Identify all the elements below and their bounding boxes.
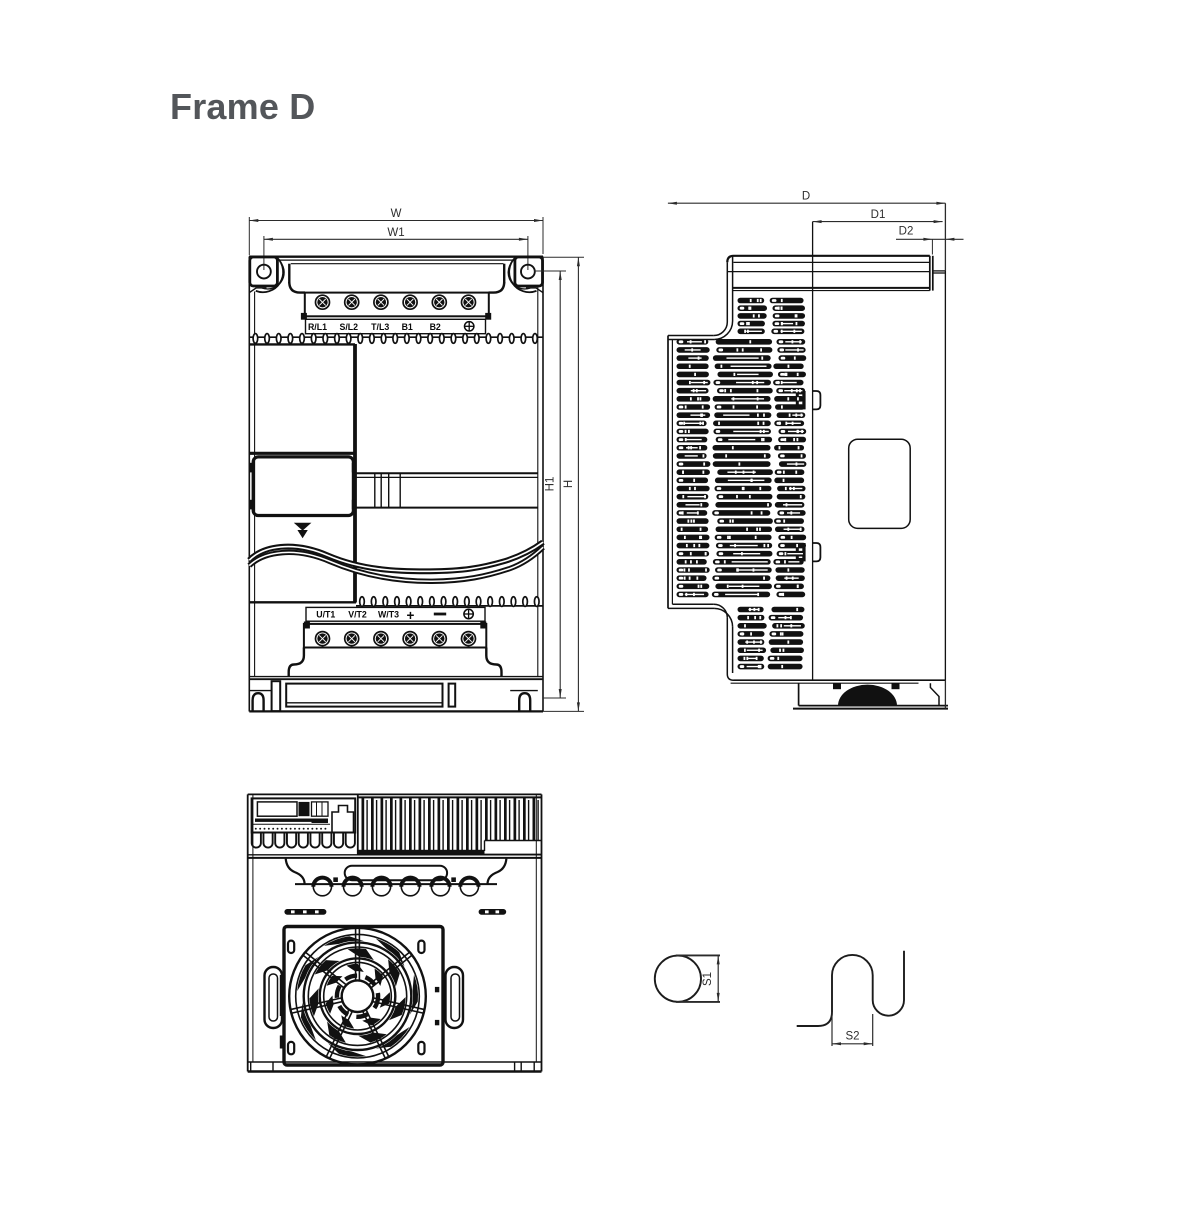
svg-text:H1: H1 (545, 477, 557, 492)
svg-text:D2: D2 (899, 226, 914, 238)
svg-text:H: H (563, 480, 575, 488)
svg-text:S1: S1 (702, 972, 714, 986)
svg-text:W1: W1 (387, 227, 404, 239)
svg-text:R/L1: R/L1 (308, 322, 327, 332)
svg-text:+: + (407, 608, 415, 623)
svg-text:D1: D1 (871, 209, 886, 221)
svg-text:S/L2: S/L2 (340, 322, 359, 332)
svg-text:B1: B1 (402, 322, 413, 332)
svg-text:B2: B2 (430, 322, 441, 332)
svg-text:U/T1: U/T1 (316, 610, 335, 620)
svg-text:W/T3: W/T3 (378, 610, 399, 620)
svg-text:V/T2: V/T2 (348, 610, 367, 620)
svg-text:W: W (391, 208, 402, 220)
svg-text:S2: S2 (845, 1031, 859, 1043)
svg-text:T/L3: T/L3 (371, 322, 389, 332)
svg-text:D: D (802, 191, 810, 203)
